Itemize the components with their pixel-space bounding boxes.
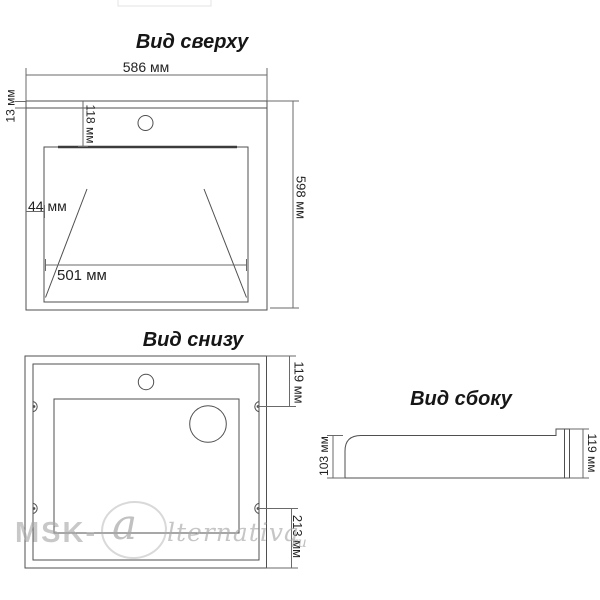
watermark-prefix: MSK- (15, 517, 97, 550)
dim-label-118: 118 мм (85, 98, 97, 151)
top-view-faucet-hole (138, 116, 153, 131)
dim-label-44: 44 мм (28, 199, 67, 213)
bottom-view-title: Вид снизу (93, 330, 293, 350)
technical-drawing-canvas: Вид сверху 586 мм 13 мм 118 мм 44 мм 501… (0, 0, 600, 600)
side-view-title: Вид сбоку (361, 389, 561, 409)
side-view (327, 429, 589, 478)
crop-artifact-line (118, 0, 211, 6)
dim-label-103: 103 мм (318, 431, 330, 481)
watermark-tld: ru (291, 535, 307, 551)
watermark-script-initial: a (112, 500, 137, 549)
side-view-dimensions (327, 429, 589, 478)
mount-notch-left-top-center (33, 405, 36, 408)
dim-label-119-side: 119 мм (586, 425, 598, 481)
dim-label-501: 501 мм (57, 268, 107, 283)
dim-label-119-bottom: 119 мм (293, 355, 306, 411)
bottom-view-drain-hole (190, 406, 227, 443)
bottom-view-faucet-hole (138, 374, 153, 389)
watermark-script-rest: lternativa (167, 518, 300, 547)
top-view-title: Вид сверху (92, 32, 292, 52)
dim-label-598: 598 мм (295, 170, 308, 226)
side-view-profile (345, 429, 570, 478)
mount-notch-left-bottom-center (33, 507, 36, 510)
dim-label-13: 13 мм (5, 82, 17, 131)
dim-label-586: 586 мм (106, 60, 186, 74)
top-view-slope-line-right (204, 189, 247, 298)
